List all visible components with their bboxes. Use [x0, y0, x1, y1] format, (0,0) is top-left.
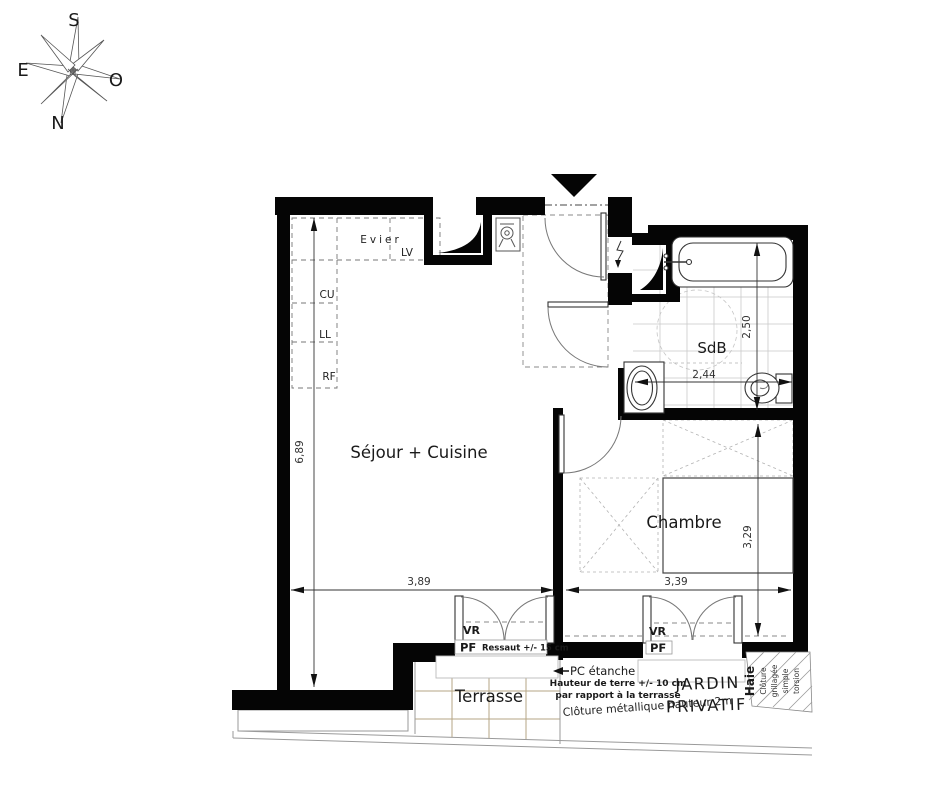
floor-plan-page: S E O N	[0, 0, 940, 800]
living-room-label: Séjour + Cuisine	[350, 443, 487, 462]
pc-etanche-label: PC étanche	[570, 664, 635, 678]
grillage-label-4: torsion	[792, 668, 801, 694]
toilet	[745, 373, 792, 403]
terre-note-line1: Hauteur de terre +/- 10 cm	[550, 679, 687, 689]
entry-hall-zone	[523, 215, 608, 367]
pf2-label: PF	[650, 641, 666, 655]
bathroom-sink	[624, 362, 664, 413]
ressaut-label: Ressaut +/- 15 cm	[482, 644, 569, 654]
bedroom-door	[559, 415, 621, 473]
dim-bedroom-width: 3,39	[664, 576, 687, 588]
dishwasher-label: LV	[401, 247, 414, 259]
dim-bedroom-height: 3,29	[742, 525, 754, 548]
hedge-label: Haie	[743, 666, 757, 696]
fridge-label: RF	[322, 371, 335, 383]
grillage-label-1: Clôture	[759, 667, 768, 695]
bathtub	[664, 237, 793, 287]
grillage-label-2: grillagée	[770, 664, 779, 697]
terrace-label: Terrasse	[454, 687, 523, 706]
pf1-label: PF	[460, 641, 476, 655]
french-door-living	[436, 596, 558, 678]
compass-east-label: E	[17, 60, 28, 81]
dim-living-width: 3,89	[407, 576, 430, 588]
bathroom-label: SdB	[697, 339, 726, 357]
cooker-label: CU	[319, 289, 334, 301]
bedroom-label: Chambre	[646, 513, 721, 532]
compass-west-label: O	[109, 70, 123, 91]
washer-label: LL	[319, 329, 331, 341]
compass-south-label: S	[68, 10, 79, 31]
dim-living-height: 6,89	[294, 440, 306, 463]
dim-bathroom-width: 2,44	[692, 369, 716, 381]
bathroom-door	[548, 302, 608, 367]
entrance-marker-icon	[551, 174, 597, 197]
compass-rose-icon: S E O N	[17, 10, 123, 134]
floor-plan-canvas: S E O N	[0, 0, 940, 800]
intercom-key-icon	[496, 218, 520, 251]
dim-bathroom-height: 2,50	[741, 315, 753, 338]
electrical-arrival-icon	[615, 241, 623, 268]
french-door-bedroom	[638, 596, 745, 682]
grillage-label-3: simple	[781, 668, 790, 693]
vr1-label: VR	[463, 624, 481, 637]
entrance-door	[545, 205, 608, 280]
kitchen-sink-label: Evier	[360, 234, 402, 246]
vr2-label: VR	[649, 625, 667, 638]
site-boundary	[233, 710, 812, 755]
compass-north-label: N	[51, 113, 64, 134]
